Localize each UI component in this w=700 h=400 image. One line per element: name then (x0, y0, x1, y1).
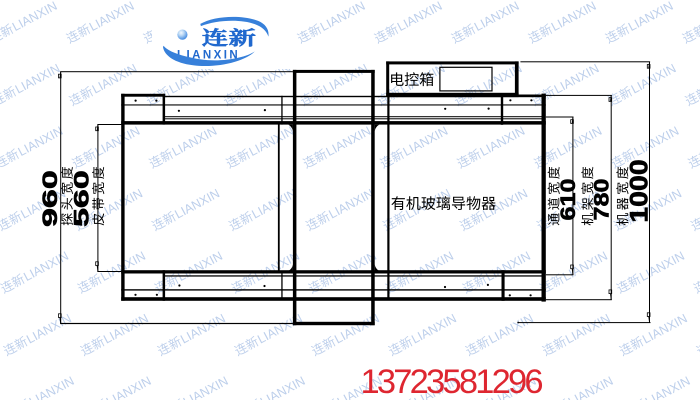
svg-text:13723581296: 13723581296 (361, 363, 543, 400)
svg-text:1000: 1000 (625, 159, 653, 222)
svg-text:560: 560 (69, 170, 93, 227)
svg-text:960: 960 (38, 170, 62, 227)
svg-text:610: 610 (556, 179, 580, 221)
svg-text:780: 780 (589, 179, 613, 221)
